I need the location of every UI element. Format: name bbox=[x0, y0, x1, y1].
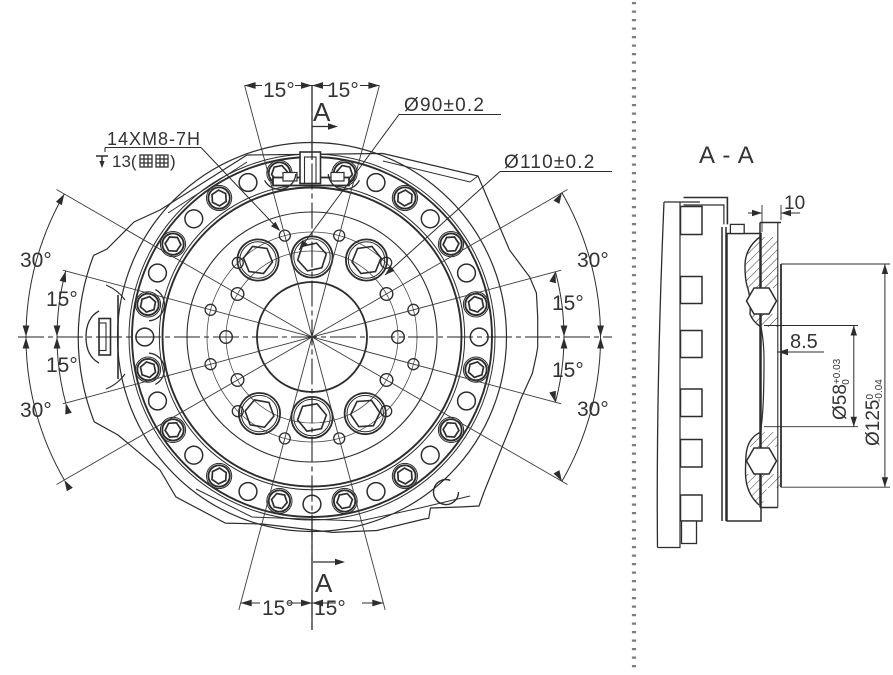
svg-text:Ø90±0.2: Ø90±0.2 bbox=[404, 95, 485, 116]
svg-text:15°: 15° bbox=[46, 354, 78, 377]
svg-text:15°: 15° bbox=[263, 79, 295, 102]
svg-text:15°: 15° bbox=[552, 292, 584, 315]
svg-text:15°: 15° bbox=[262, 597, 294, 620]
svg-text:A: A bbox=[315, 568, 333, 598]
svg-text:Ø110±0.2: Ø110±0.2 bbox=[504, 152, 596, 173]
svg-text:10: 10 bbox=[784, 193, 805, 214]
svg-text:8.5: 8.5 bbox=[790, 331, 818, 353]
svg-text:): ) bbox=[170, 152, 176, 171]
svg-text:A - A: A - A bbox=[699, 142, 755, 169]
svg-text:30°: 30° bbox=[20, 249, 52, 272]
svg-text:30°: 30° bbox=[577, 398, 609, 421]
svg-text:15°: 15° bbox=[552, 359, 584, 382]
svg-text:30°: 30° bbox=[20, 399, 52, 422]
svg-text:30°: 30° bbox=[577, 249, 609, 272]
svg-text:A: A bbox=[313, 97, 331, 127]
svg-text:15°: 15° bbox=[314, 597, 346, 620]
svg-text:14XM8-7H: 14XM8-7H bbox=[107, 129, 201, 149]
svg-text:13(: 13( bbox=[112, 152, 137, 171]
svg-text:15°: 15° bbox=[327, 79, 359, 102]
svg-text:15°: 15° bbox=[46, 288, 78, 311]
